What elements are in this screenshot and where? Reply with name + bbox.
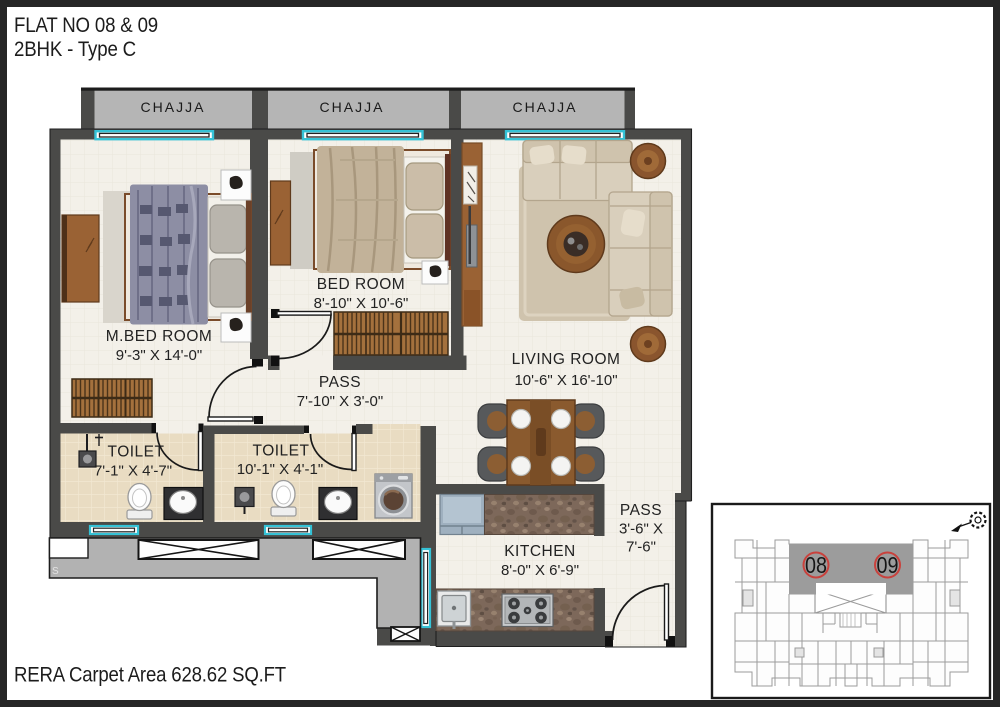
svg-text:7'-6": 7'-6" <box>626 539 656 556</box>
svg-text:TOILET: TOILET <box>253 443 310 460</box>
svg-text:KITCHEN: KITCHEN <box>504 543 576 560</box>
svg-text:8'-10" X 10'-6": 8'-10" X 10'-6" <box>314 295 409 312</box>
svg-text:TOILET: TOILET <box>108 444 165 461</box>
svg-text:BED ROOM: BED ROOM <box>317 276 405 293</box>
svg-text:PASS: PASS <box>319 374 361 391</box>
svg-text:09: 09 <box>877 552 899 578</box>
svg-text:CHAJJA: CHAJJA <box>141 99 206 115</box>
svg-text:7'-1" X 4'-7": 7'-1" X 4'-7" <box>94 463 172 480</box>
svg-text:10'-6" X 16'-10": 10'-6" X 16'-10" <box>514 372 617 389</box>
svg-text:9'-3" X 14'-0": 9'-3" X 14'-0" <box>116 347 202 364</box>
svg-text:10'-1" X 4'-1": 10'-1" X 4'-1" <box>237 461 323 478</box>
svg-text:M.BED ROOM: M.BED ROOM <box>106 328 213 345</box>
svg-text:7'-10" X 3'-0": 7'-10" X 3'-0" <box>297 393 383 410</box>
svg-text:3'-6" X: 3'-6" X <box>619 521 663 538</box>
svg-text:RERA Carpet Area 628.62 SQ.FT: RERA Carpet Area 628.62 SQ.FT <box>14 663 286 687</box>
svg-text:PASS: PASS <box>620 502 662 519</box>
svg-text:LIVING ROOM: LIVING ROOM <box>512 351 621 368</box>
svg-text:2BHK - Type C: 2BHK - Type C <box>14 37 136 61</box>
svg-text:CHAJJA: CHAJJA <box>320 99 385 115</box>
svg-text:08: 08 <box>805 552 827 578</box>
svg-text:CHAJJA: CHAJJA <box>513 99 578 115</box>
svg-text:8'-0" X 6'-9": 8'-0" X 6'-9" <box>501 562 579 579</box>
svg-text:FLAT NO 08 & 09: FLAT NO 08 & 09 <box>14 13 158 37</box>
svg-text:S: S <box>52 566 59 577</box>
